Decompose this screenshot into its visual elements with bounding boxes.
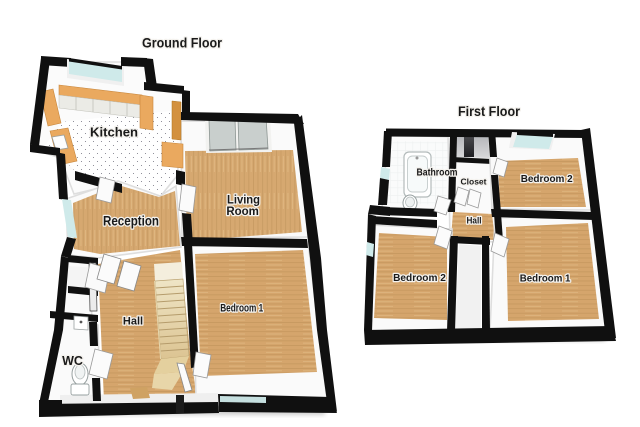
svg-text:Ground Floor: Ground Floor: [142, 36, 223, 51]
svg-text:WC: WC: [62, 354, 83, 368]
svg-text:Bathroom: Bathroom: [417, 166, 458, 178]
svg-text:Bedroom 1: Bedroom 1: [220, 302, 263, 314]
svg-text:Bedroom 2: Bedroom 2: [393, 272, 446, 284]
svg-text:Room: Room: [226, 204, 259, 218]
svg-text:Reception: Reception: [103, 213, 159, 228]
svg-text:Kitchen: Kitchen: [90, 126, 138, 140]
svg-text:Bedroom 2: Bedroom 2: [521, 173, 573, 185]
svg-text:First Floor: First Floor: [458, 104, 521, 119]
svg-text:Bedroom 1: Bedroom 1: [520, 273, 571, 285]
svg-text:Closet: Closet: [461, 176, 487, 186]
svg-text:Hall: Hall: [467, 215, 482, 225]
svg-text:Hall: Hall: [123, 316, 143, 328]
